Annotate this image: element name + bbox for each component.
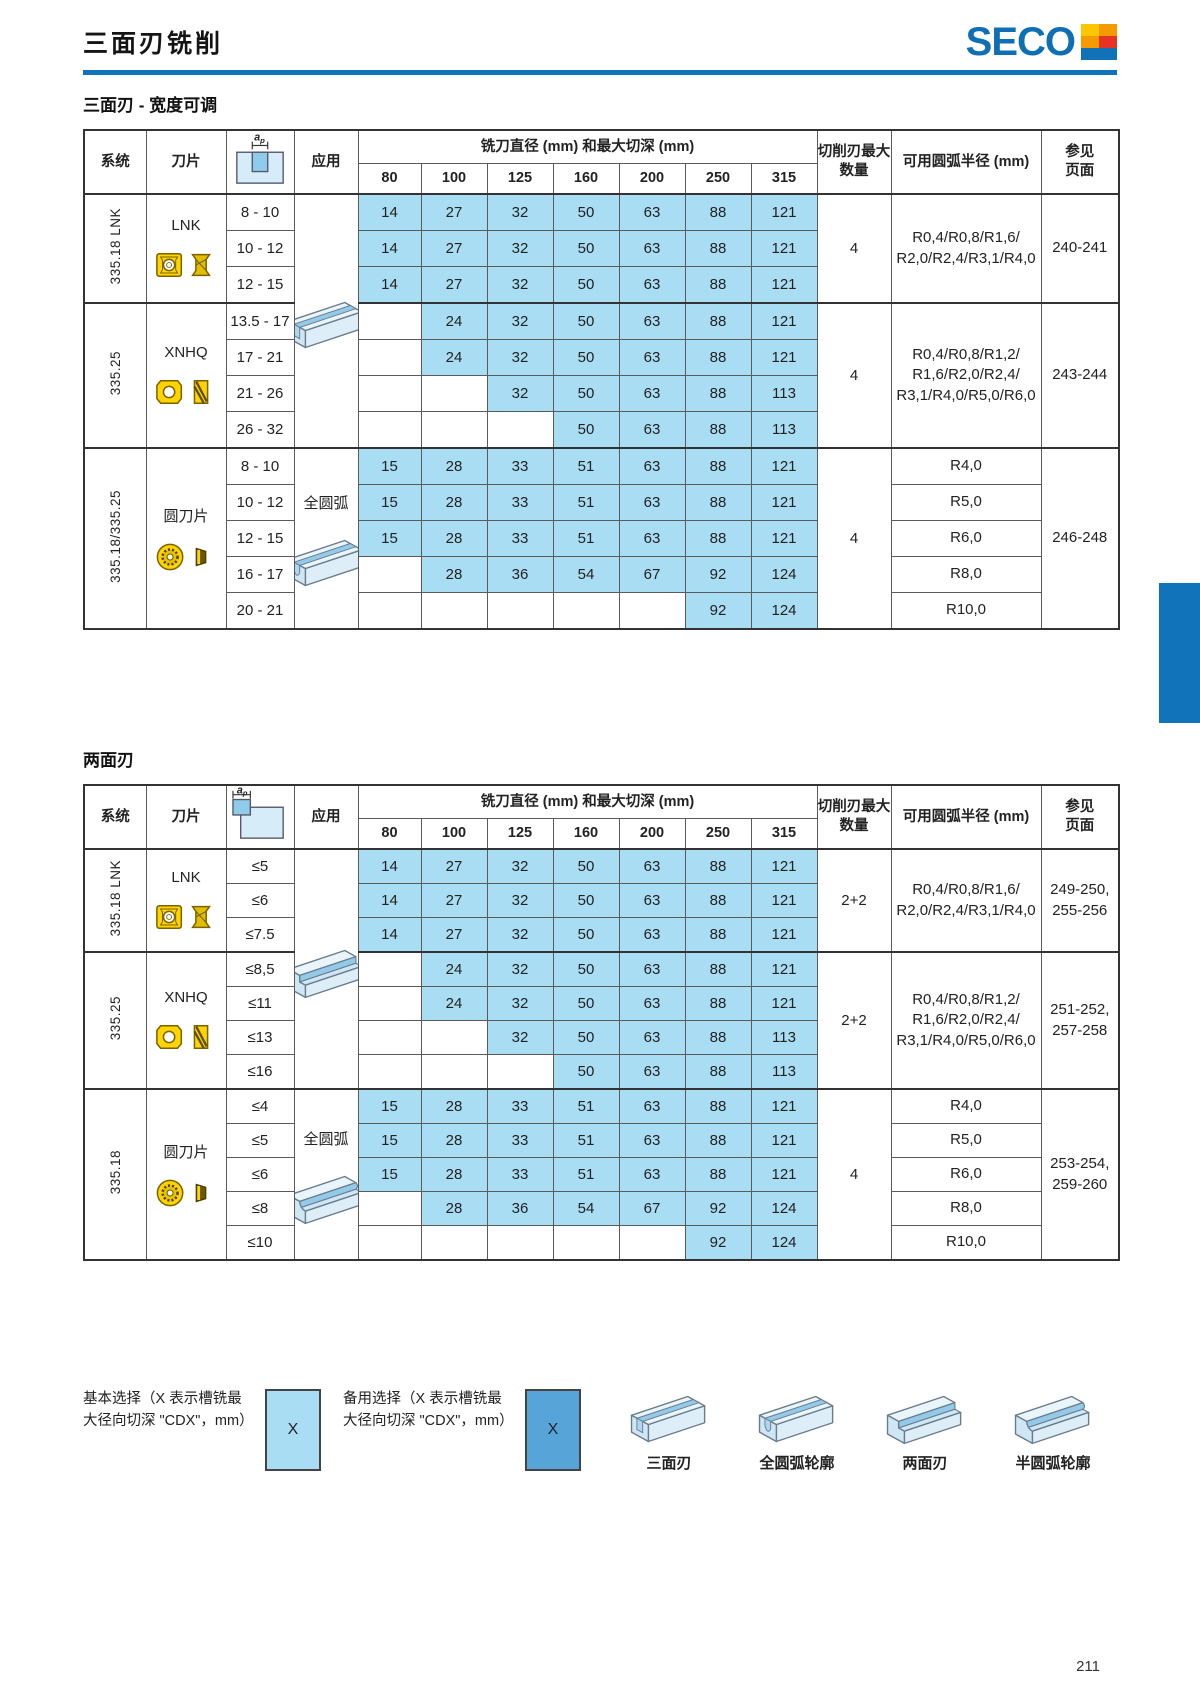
radius-cell: R4,0 [891, 448, 1041, 485]
ap-range-cell: ≤8 [226, 1192, 294, 1226]
insert-cell: XNHQ [146, 952, 226, 1089]
diameter-value-cell: 27 [421, 194, 487, 231]
diameter-value-cell: 15 [358, 1158, 421, 1192]
diameter-value-cell [553, 1226, 619, 1261]
ap-range-cell: ≤5 [226, 849, 294, 884]
diameter-value-cell: 50 [553, 412, 619, 449]
edge-count-cell: 2+2 [817, 849, 891, 952]
diameter-value-cell: 121 [751, 303, 817, 340]
two-face-table-host: 系统刀片应用铣刀直径 (mm) 和最大切深 (mm)切削刃最大 数量可用圆弧半径… [83, 784, 1117, 1261]
diameter-value-cell: 113 [751, 376, 817, 412]
diameter-value-cell: 63 [619, 884, 685, 918]
diameter-value-cell: 28 [421, 521, 487, 557]
diameter-value-cell: 88 [685, 987, 751, 1021]
diameter-value-cell: 63 [619, 376, 685, 412]
diameter-value-cell: 50 [553, 849, 619, 884]
diameter-value-cell: 92 [685, 1226, 751, 1261]
round-insert-icon [155, 542, 217, 572]
diameter-value-cell [358, 557, 421, 593]
diameter-value-cell: 27 [421, 231, 487, 267]
profile-label: 全圆弧轮廓 [759, 1452, 834, 1473]
diameter-value-cell: 32 [487, 849, 553, 884]
diameter-value-cell: 63 [619, 918, 685, 953]
round-insert-icon [155, 1178, 217, 1208]
diameter-value-cell: 24 [421, 340, 487, 376]
diameter-value-cell: 121 [751, 194, 817, 231]
diameter-value-cell: 88 [685, 952, 751, 987]
diameter-value-cell: 121 [751, 340, 817, 376]
diameter-value-cell: 32 [487, 340, 553, 376]
diameter-value-cell: 121 [751, 521, 817, 557]
diameter-value-cell [358, 1226, 421, 1261]
diameter-value-cell: 121 [751, 485, 817, 521]
diameter-value-cell: 88 [685, 521, 751, 557]
diameter-header: 250 [685, 819, 751, 850]
diameter-value-cell: 28 [421, 1192, 487, 1226]
diameter-value-cell: 50 [553, 267, 619, 304]
step2-profile-icon [294, 943, 358, 1003]
diameter-value-cell: 121 [751, 1124, 817, 1158]
pages-cell: 249-250, 255-256 [1041, 849, 1119, 952]
ap-range-cell: ≤4 [226, 1089, 294, 1124]
diameter-value-cell: 54 [553, 557, 619, 593]
diameter-value-cell: 63 [619, 1124, 685, 1158]
lnk-insert-icon [155, 250, 217, 280]
width-adjustable-table-host: 系统刀片应用铣刀直径 (mm) 和最大切深 (mm)切削刃最大 数量可用圆弧半径… [83, 129, 1117, 630]
ap-range-cell: ≤16 [226, 1055, 294, 1090]
legend-secondary-text: 备用选择（X 表示槽铣最大径向切深 "CDX"，mm） [343, 1389, 513, 1471]
diameter-value-cell [358, 952, 421, 987]
diameter-value-cell: 121 [751, 1158, 817, 1192]
col-header-edge-count: 切削刃最大 数量 [817, 785, 891, 849]
ap-range-cell: ≤10 [226, 1226, 294, 1261]
diameter-value-cell: 121 [751, 231, 817, 267]
two-face-table: 系统刀片应用铣刀直径 (mm) 和最大切深 (mm)切削刃最大 数量可用圆弧半径… [83, 784, 1120, 1261]
radius-cell: R0,4/R0,8/R1,2/ R1,6/R2,0/R2,4/ R3,1/R4,… [891, 952, 1041, 1089]
ap-range-cell: 10 - 12 [226, 485, 294, 521]
ap-range-cell: ≤8,5 [226, 952, 294, 987]
radius-cell: R5,0 [891, 485, 1041, 521]
diameter-header: 160 [553, 164, 619, 195]
profile-label: 半圆弧轮廓 [1015, 1452, 1090, 1473]
diameter-value-cell: 88 [685, 376, 751, 412]
ap-range-cell: 8 - 10 [226, 448, 294, 485]
diameter-value-cell: 14 [358, 267, 421, 304]
catalog-page: 三面刃铣削 SECO 三面刃 - 宽度可调 系统刀片应用铣刀直径 (mm) 和最… [0, 0, 1200, 1697]
diameter-value-cell: 14 [358, 918, 421, 953]
profile-item: 全圆弧轮廓 [745, 1389, 849, 1473]
diameter-value-cell: 15 [358, 448, 421, 485]
col-header-radius: 可用圆弧半径 (mm) [891, 785, 1041, 849]
col-header-ap-diagram [226, 785, 294, 849]
diameter-value-cell: 88 [685, 884, 751, 918]
diameter-value-cell: 28 [421, 1089, 487, 1124]
col-header-system: 系统 [84, 785, 146, 849]
diameter-value-cell [421, 412, 487, 449]
pages-cell: 243-244 [1041, 303, 1119, 448]
ap-range-cell: 12 - 15 [226, 267, 294, 304]
diameter-value-cell: 63 [619, 194, 685, 231]
diameter-value-cell: 50 [553, 1021, 619, 1055]
ap-range-cell: 13.5 - 17 [226, 303, 294, 340]
diameter-value-cell: 27 [421, 918, 487, 953]
insert-cell: LNK [146, 849, 226, 952]
diameter-value-cell: 124 [751, 593, 817, 630]
diameter-value-cell [358, 593, 421, 630]
diameter-value-cell: 88 [685, 231, 751, 267]
diameter-value-cell: 121 [751, 952, 817, 987]
diameter-value-cell: 51 [553, 1124, 619, 1158]
ap-range-cell: ≤6 [226, 1158, 294, 1192]
diameter-value-cell: 27 [421, 849, 487, 884]
diameter-header: 125 [487, 819, 553, 850]
diameter-value-cell: 32 [487, 884, 553, 918]
section-title-width-adjustable: 三面刃 - 宽度可调 [83, 91, 1117, 116]
diameter-value-cell [487, 1055, 553, 1090]
diameter-value-cell: 63 [619, 231, 685, 267]
diameter-value-cell [421, 1021, 487, 1055]
diameter-value-cell: 33 [487, 1158, 553, 1192]
seco-logo-mark-icon [1081, 24, 1117, 60]
slot3-profile-icon [623, 1389, 715, 1449]
insert-type-label: LNK [171, 217, 200, 234]
insert-type-label: 圆刀片 [163, 505, 208, 526]
diameter-header: 125 [487, 164, 553, 195]
diameter-value-cell: 36 [487, 557, 553, 593]
legend-primary-entry: 基本选择（X 表示槽铣最大径向切深 "CDX"，mm） X [83, 1389, 321, 1471]
radius-cell: R6,0 [891, 1158, 1041, 1192]
diameter-value-cell: 32 [487, 194, 553, 231]
diameter-value-cell [553, 593, 619, 630]
system-cell: 335.18 LNK [84, 194, 146, 303]
seco-logo-text: SECO [966, 25, 1075, 59]
diameter-value-cell: 28 [421, 448, 487, 485]
diameter-value-cell [421, 1226, 487, 1261]
diameter-value-cell: 51 [553, 521, 619, 557]
insert-cell: XNHQ [146, 303, 226, 448]
diameter-value-cell: 124 [751, 1192, 817, 1226]
diameter-header: 100 [421, 819, 487, 850]
radius-cell: R5,0 [891, 1124, 1041, 1158]
diameter-value-cell: 33 [487, 448, 553, 485]
application-label: 全圆弧 [303, 1128, 348, 1149]
diameter-value-cell [421, 593, 487, 630]
ap-range-cell: 17 - 21 [226, 340, 294, 376]
radius-cell: R0,4/R0,8/R1,6/ R2,0/R2,4/R3,1/R4,0 [891, 194, 1041, 303]
diameter-value-cell: 50 [553, 303, 619, 340]
page-edge-tab [1159, 583, 1200, 723]
diameter-value-cell [358, 303, 421, 340]
xnhq-insert-icon [155, 1022, 217, 1052]
diameter-value-cell: 32 [487, 231, 553, 267]
diameter-value-cell: 88 [685, 194, 751, 231]
diameter-value-cell: 121 [751, 918, 817, 953]
system-cell: 335.18/335.25 [84, 448, 146, 629]
edge-count-cell: 4 [817, 448, 891, 629]
col-header-insert: 刀片 [146, 130, 226, 194]
diameter-value-cell: 88 [685, 1021, 751, 1055]
diameter-value-cell [619, 1226, 685, 1261]
profile-item: 两面刃 [873, 1389, 977, 1473]
edge-count-cell: 2+2 [817, 952, 891, 1089]
radius-cell: R10,0 [891, 593, 1041, 630]
diameter-value-cell: 54 [553, 1192, 619, 1226]
legend: 基本选择（X 表示槽铣最大径向切深 "CDX"，mm） X 备用选择（X 表示槽… [83, 1389, 1117, 1473]
diameter-value-cell [421, 376, 487, 412]
diameter-value-cell: 14 [358, 884, 421, 918]
diameter-value-cell: 15 [358, 1124, 421, 1158]
page-number: 211 [1076, 1658, 1100, 1675]
diameter-value-cell: 32 [487, 303, 553, 340]
diameter-value-cell: 15 [358, 521, 421, 557]
col-header-insert: 刀片 [146, 785, 226, 849]
diameter-value-cell [487, 593, 553, 630]
legend-secondary-swatch: X [525, 1389, 581, 1471]
diameter-header: 315 [751, 164, 817, 195]
diameter-value-cell: 24 [421, 952, 487, 987]
diameter-value-cell [487, 1226, 553, 1261]
ap-range-cell: ≤5 [226, 1124, 294, 1158]
diameter-header: 80 [358, 819, 421, 850]
diameter-value-cell: 63 [619, 1055, 685, 1090]
diameter-value-cell: 88 [685, 303, 751, 340]
col-header-ap-diagram [226, 130, 294, 194]
diameter-value-cell: 121 [751, 1089, 817, 1124]
diameter-value-cell: 24 [421, 987, 487, 1021]
seco-logo: SECO [966, 24, 1117, 60]
width-adjustable-table: 系统刀片应用铣刀直径 (mm) 和最大切深 (mm)切削刃最大 数量可用圆弧半径… [83, 129, 1120, 630]
diameter-value-cell: 63 [619, 412, 685, 449]
application-cell: 全圆弧 [294, 1089, 358, 1260]
diameter-value-cell: 50 [553, 952, 619, 987]
diameter-value-cell: 121 [751, 448, 817, 485]
diameter-value-cell [358, 412, 421, 449]
system-label: 335.18 LNK [108, 860, 123, 936]
xnhq-insert-icon [155, 377, 217, 407]
col-header-pages: 参见 页面 [1041, 130, 1119, 194]
diameter-value-cell: 32 [487, 918, 553, 953]
legend-primary-text: 基本选择（X 表示槽铣最大径向切深 "CDX"，mm） [83, 1389, 253, 1471]
diameter-value-cell: 28 [421, 557, 487, 593]
system-label: 335.25 [108, 351, 123, 395]
diameter-value-cell: 63 [619, 952, 685, 987]
ap-range-cell: 12 - 15 [226, 521, 294, 557]
diameter-value-cell: 51 [553, 448, 619, 485]
col-header-application: 应用 [294, 785, 358, 849]
diameter-value-cell: 50 [553, 194, 619, 231]
diameter-value-cell: 124 [751, 1226, 817, 1261]
ap-range-cell: ≤13 [226, 1021, 294, 1055]
diameter-value-cell: 15 [358, 485, 421, 521]
diameter-header: 200 [619, 164, 685, 195]
col-header-application: 应用 [294, 130, 358, 194]
radius-cell: R0,4/R0,8/R1,6/ R2,0/R2,4/R3,1/R4,0 [891, 849, 1041, 952]
col-header-diameters: 铣刀直径 (mm) 和最大切深 (mm) [358, 130, 817, 164]
diameter-value-cell: 33 [487, 1124, 553, 1158]
system-label: 335.18 LNK [108, 208, 123, 284]
diameter-value-cell: 67 [619, 1192, 685, 1226]
col-header-diameters: 铣刀直径 (mm) 和最大切深 (mm) [358, 785, 817, 819]
diameter-value-cell: 88 [685, 340, 751, 376]
ap-range-cell: 20 - 21 [226, 593, 294, 630]
diameter-value-cell: 50 [553, 918, 619, 953]
diameter-value-cell: 50 [553, 231, 619, 267]
pages-cell: 240-241 [1041, 194, 1119, 303]
radius-cell: R0,4/R0,8/R1,2/ R1,6/R2,0/R2,4/ R3,1/R4,… [891, 303, 1041, 448]
insert-type-label: XNHQ [164, 989, 207, 1006]
radius-cell: R4,0 [891, 1089, 1041, 1124]
diameter-value-cell [487, 412, 553, 449]
diameter-header: 100 [421, 164, 487, 195]
diameter-value-cell: 121 [751, 849, 817, 884]
diameter-value-cell: 33 [487, 1089, 553, 1124]
diameter-value-cell: 88 [685, 412, 751, 449]
diameter-value-cell: 51 [553, 485, 619, 521]
diameter-value-cell: 36 [487, 1192, 553, 1226]
insert-cell: 圆刀片 [146, 1089, 226, 1260]
pages-cell: 246-248 [1041, 448, 1119, 629]
diameter-value-cell [358, 987, 421, 1021]
diameter-value-cell [358, 376, 421, 412]
slot3-profile-icon [294, 295, 358, 355]
diameter-value-cell [358, 1021, 421, 1055]
system-label: 335.18 [108, 1150, 123, 1194]
edge-count-cell: 4 [817, 1089, 891, 1260]
diameter-value-cell: 51 [553, 1089, 619, 1124]
application-cell [294, 849, 358, 1089]
radius-cell: R8,0 [891, 557, 1041, 593]
diameter-value-cell: 33 [487, 521, 553, 557]
stepR-profile-icon [294, 1169, 358, 1229]
stepR-profile-icon [1007, 1389, 1099, 1449]
edge-count-cell: 4 [817, 303, 891, 448]
diameter-value-cell: 14 [358, 231, 421, 267]
pages-cell: 253-254, 259-260 [1041, 1089, 1119, 1260]
diameter-value-cell: 63 [619, 849, 685, 884]
diameter-value-cell: 63 [619, 987, 685, 1021]
header-divider [83, 70, 1117, 75]
diameter-value-cell: 50 [553, 376, 619, 412]
insert-type-label: XNHQ [164, 344, 207, 361]
system-cell: 335.25 [84, 303, 146, 448]
diameter-value-cell: 88 [685, 1089, 751, 1124]
diameter-header: 315 [751, 819, 817, 850]
diameter-value-cell: 27 [421, 884, 487, 918]
diameter-value-cell: 121 [751, 987, 817, 1021]
diameter-value-cell: 32 [487, 1021, 553, 1055]
diameter-value-cell: 14 [358, 194, 421, 231]
diameter-value-cell: 27 [421, 267, 487, 304]
insert-type-label: LNK [171, 869, 200, 886]
ap-depth-diagram-icon [229, 131, 291, 187]
system-label: 335.25 [108, 996, 123, 1040]
ap-range-cell: 8 - 10 [226, 194, 294, 231]
diameter-value-cell: 33 [487, 485, 553, 521]
profile-label: 三面刃 [646, 1452, 691, 1473]
col-header-system: 系统 [84, 130, 146, 194]
diameter-value-cell [421, 1055, 487, 1090]
legend-primary-swatch: X [265, 1389, 321, 1471]
diameter-value-cell: 50 [553, 340, 619, 376]
ap-depth-diagram-icon [229, 786, 291, 842]
diameter-value-cell: 63 [619, 303, 685, 340]
diameter-value-cell: 63 [619, 267, 685, 304]
insert-cell: LNK [146, 194, 226, 303]
diameter-value-cell: 88 [685, 485, 751, 521]
lnk-insert-icon [155, 902, 217, 932]
diameter-value-cell: 113 [751, 412, 817, 449]
diameter-value-cell: 24 [421, 303, 487, 340]
diameter-value-cell: 50 [553, 987, 619, 1021]
application-cell: 全圆弧 [294, 448, 358, 629]
diameter-value-cell: 88 [685, 849, 751, 884]
legend-secondary-entry: 备用选择（X 表示槽铣最大径向切深 "CDX"，mm） X [343, 1389, 581, 1471]
ap-range-cell: ≤6 [226, 884, 294, 918]
diameter-value-cell: 32 [487, 376, 553, 412]
profile-item: 三面刃 [617, 1389, 721, 1473]
diameter-value-cell: 88 [685, 918, 751, 953]
profile-item: 半圆弧轮廓 [1001, 1389, 1105, 1473]
ap-range-cell: 10 - 12 [226, 231, 294, 267]
diameter-value-cell: 63 [619, 521, 685, 557]
diameter-header: 80 [358, 164, 421, 195]
radius-cell: R8,0 [891, 1192, 1041, 1226]
ap-range-cell: ≤7.5 [226, 918, 294, 953]
diameter-value-cell: 92 [685, 557, 751, 593]
masthead: 三面刃铣削 SECO [83, 0, 1117, 60]
diameter-value-cell: 92 [685, 1192, 751, 1226]
diameter-value-cell: 50 [553, 1055, 619, 1090]
diameter-value-cell: 32 [487, 267, 553, 304]
diameter-value-cell: 28 [421, 1124, 487, 1158]
radius-cell: R6,0 [891, 521, 1041, 557]
diameter-value-cell: 63 [619, 485, 685, 521]
diameter-value-cell: 51 [553, 1158, 619, 1192]
diameter-value-cell [619, 593, 685, 630]
insert-cell: 圆刀片 [146, 448, 226, 629]
diameter-value-cell: 88 [685, 1124, 751, 1158]
diameter-value-cell: 32 [487, 987, 553, 1021]
system-label: 335.18/335.25 [108, 490, 123, 583]
diameter-header: 160 [553, 819, 619, 850]
edge-count-cell: 4 [817, 194, 891, 303]
diameter-value-cell: 88 [685, 1158, 751, 1192]
diameter-value-cell: 63 [619, 448, 685, 485]
system-cell: 335.18 LNK [84, 849, 146, 952]
ap-range-cell: 16 - 17 [226, 557, 294, 593]
section-title-two-face: 两面刃 [83, 746, 1117, 771]
application-cell [294, 194, 358, 448]
diameter-value-cell: 63 [619, 1089, 685, 1124]
diameter-value-cell: 121 [751, 267, 817, 304]
diameter-value-cell [358, 1055, 421, 1090]
col-header-pages: 参见 页面 [1041, 785, 1119, 849]
diameter-value-cell: 113 [751, 1021, 817, 1055]
insert-type-label: 圆刀片 [163, 1141, 208, 1162]
slotR-profile-icon [294, 533, 358, 593]
diameter-value-cell: 63 [619, 1021, 685, 1055]
ap-range-cell: 21 - 26 [226, 376, 294, 412]
diameter-header: 200 [619, 819, 685, 850]
diameter-value-cell: 67 [619, 557, 685, 593]
diameter-value-cell: 50 [553, 884, 619, 918]
ap-range-cell: ≤11 [226, 987, 294, 1021]
system-cell: 335.25 [84, 952, 146, 1089]
diameter-value-cell: 15 [358, 1089, 421, 1124]
diameter-value-cell [358, 1192, 421, 1226]
diameter-value-cell: 92 [685, 593, 751, 630]
system-cell: 335.18 [84, 1089, 146, 1260]
